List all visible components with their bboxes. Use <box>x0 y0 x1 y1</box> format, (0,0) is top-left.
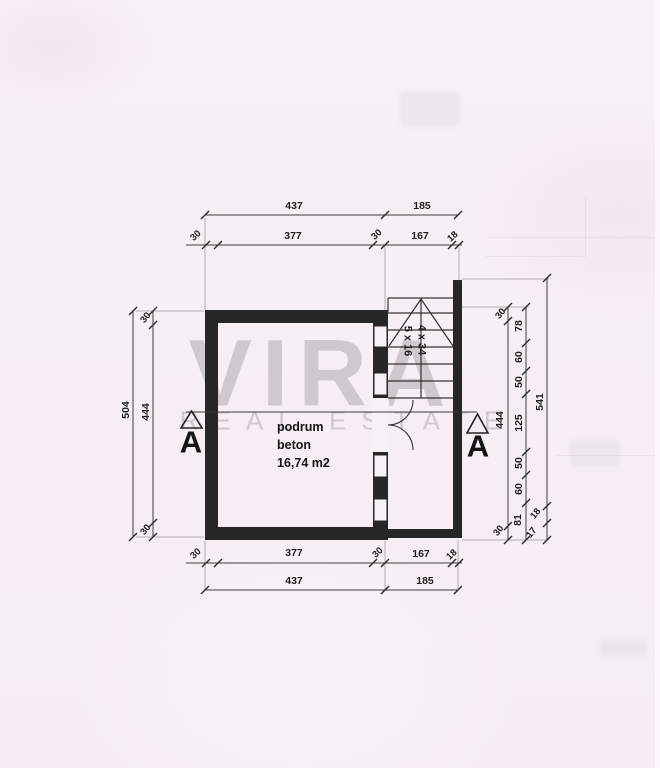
section-marker-right: A <box>467 431 489 462</box>
room-material: beton <box>277 436 330 454</box>
dim-label: 185 <box>413 201 431 212</box>
dim-label: 81 <box>513 514 524 526</box>
dim-label: 78 <box>514 320 525 332</box>
dim-label: 125 <box>514 414 525 432</box>
walls <box>205 280 462 540</box>
dim-label: 167 <box>411 231 429 242</box>
dim-label: 377 <box>285 548 303 559</box>
room-area: 16,74 m2 <box>277 454 330 472</box>
stair-risers-label: 5 x 16 <box>402 326 413 357</box>
room-name: podrum <box>277 418 330 436</box>
dim-label: 185 <box>416 576 434 587</box>
dim-label: 377 <box>284 231 302 242</box>
stair-treads-label: 4 x 34 <box>416 325 427 356</box>
dim-label: 541 <box>535 393 546 411</box>
section-marker-left: A <box>180 427 202 458</box>
dim-label: 444 <box>141 403 152 421</box>
dim-label: 50 <box>514 457 525 469</box>
dim-label: 60 <box>514 483 525 495</box>
door-swing <box>388 400 413 450</box>
dim-label: 167 <box>412 549 430 560</box>
dim-label: 437 <box>285 201 303 212</box>
room-label: podrum beton 16,74 m2 <box>277 418 330 472</box>
section-triangles <box>181 411 488 433</box>
floor-plan-scan: VIRA REAL ESTATE <box>0 0 660 768</box>
door-opening <box>372 398 389 452</box>
dim-label: 504 <box>121 401 132 419</box>
dim-label: 437 <box>285 576 303 587</box>
dim-label: 50 <box>514 376 525 388</box>
dim-label: 60 <box>514 351 525 363</box>
plan-linework <box>0 0 660 768</box>
section-line <box>181 411 488 433</box>
dim-label: 444 <box>495 411 506 429</box>
